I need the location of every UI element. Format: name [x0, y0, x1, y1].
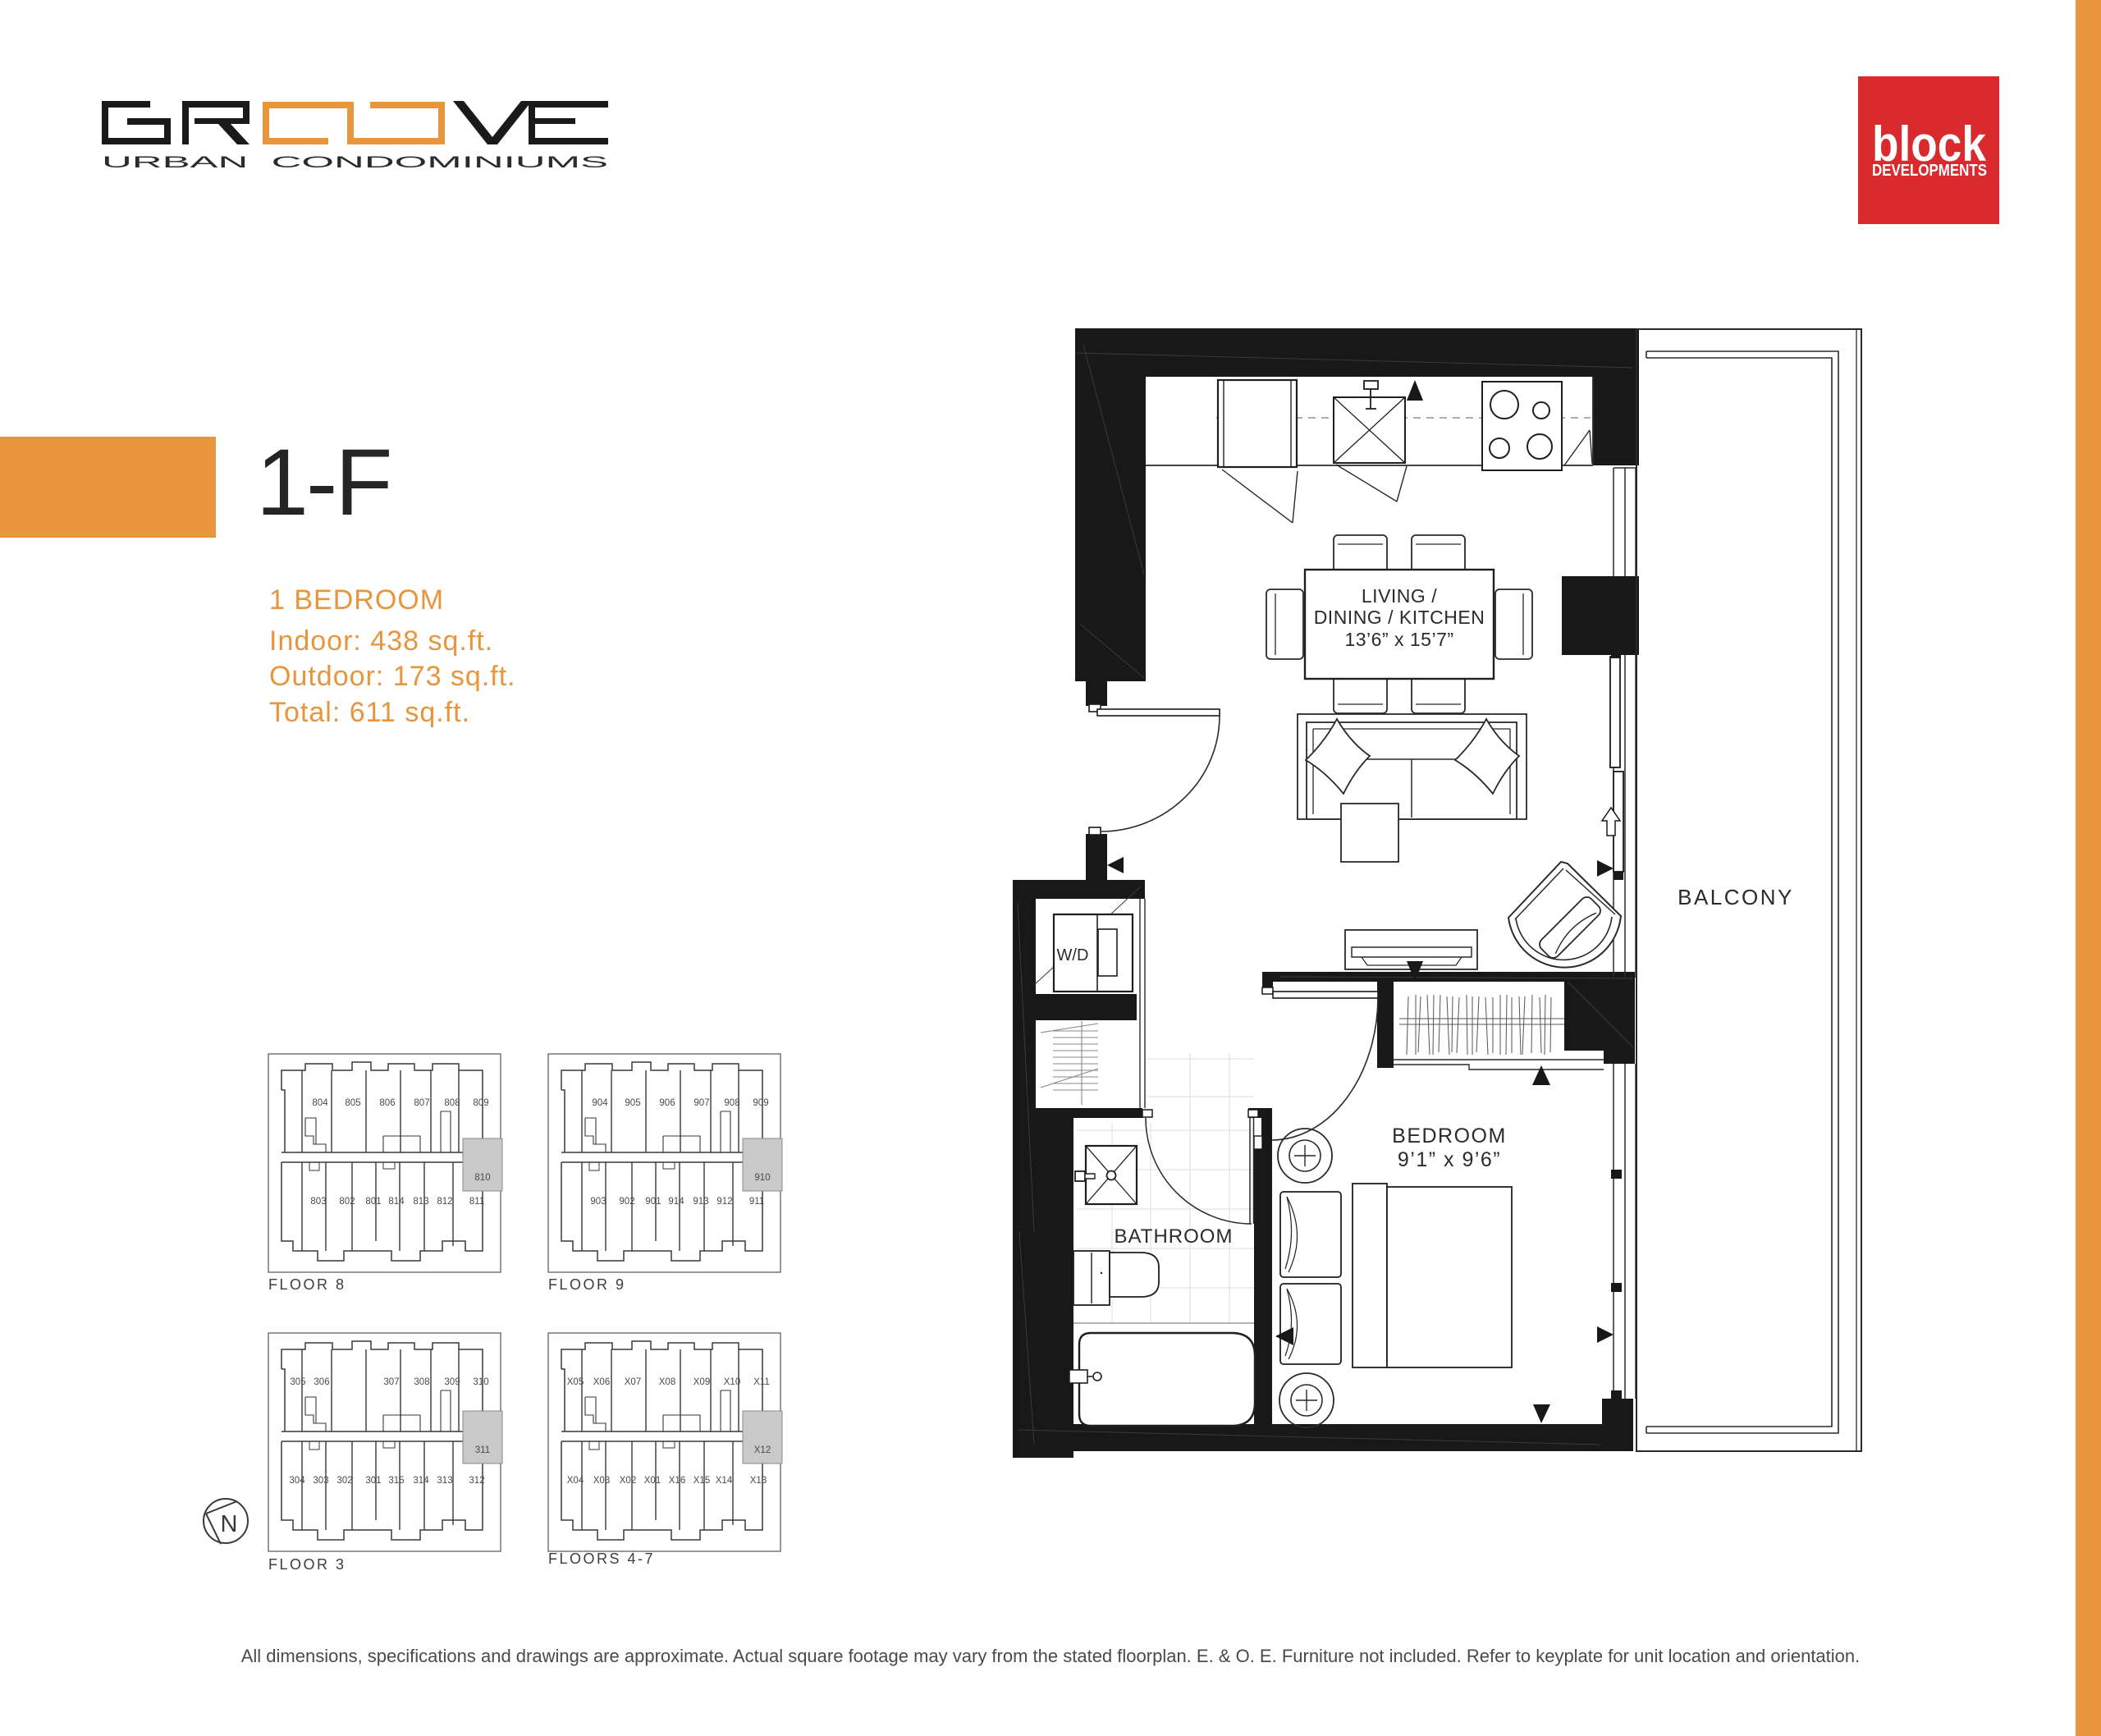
svg-text:DINING / KITCHEN: DINING / KITCHEN [1314, 607, 1485, 628]
svg-text:306: 306 [314, 1377, 329, 1387]
svg-text:910: 910 [754, 1173, 770, 1183]
svg-text:X11: X11 [753, 1377, 770, 1387]
svg-text:906: 906 [659, 1098, 675, 1108]
svg-text:913: 913 [693, 1197, 708, 1207]
svg-text:810: 810 [474, 1173, 490, 1183]
svg-text:309: 309 [444, 1377, 460, 1387]
svg-text:301: 301 [365, 1476, 381, 1486]
svg-text:808: 808 [444, 1098, 460, 1108]
svg-text:X14: X14 [716, 1476, 733, 1486]
svg-text:905: 905 [625, 1098, 640, 1108]
svg-text:814: 814 [388, 1197, 405, 1207]
svg-text:312: 312 [469, 1476, 484, 1486]
svg-text:304: 304 [289, 1476, 305, 1486]
svg-text:303: 303 [313, 1476, 328, 1486]
svg-text:X07: X07 [625, 1377, 641, 1387]
svg-text:FLOOR 3: FLOOR 3 [268, 1556, 346, 1573]
svg-text:812: 812 [437, 1197, 452, 1207]
svg-text:N: N [221, 1511, 238, 1537]
svg-text:X04: X04 [567, 1476, 584, 1486]
svg-text:X06: X06 [593, 1377, 610, 1387]
svg-text:314: 314 [413, 1476, 429, 1486]
svg-text:903: 903 [590, 1197, 606, 1207]
svg-text:X15: X15 [693, 1476, 710, 1486]
svg-text:909: 909 [753, 1098, 768, 1108]
svg-text:FLOOR 9: FLOOR 9 [548, 1276, 626, 1293]
svg-text:BATHROOM: BATHROOM [1115, 1225, 1234, 1248]
svg-text:X16: X16 [669, 1476, 685, 1486]
svg-text:308: 308 [414, 1377, 429, 1387]
svg-text:URBAN CONDOMINIUMS: URBAN CONDOMINIUMS [102, 153, 608, 172]
svg-text:907: 907 [693, 1098, 709, 1108]
svg-text:BEDROOM: BEDROOM [1392, 1125, 1507, 1147]
svg-text:801: 801 [365, 1197, 381, 1207]
svg-text:FLOOR 8: FLOOR 8 [268, 1276, 346, 1293]
svg-text:313: 313 [437, 1476, 452, 1486]
svg-text:902: 902 [619, 1197, 634, 1207]
svg-text:804: 804 [312, 1098, 328, 1108]
svg-text:912: 912 [716, 1197, 732, 1207]
svg-text:911: 911 [749, 1197, 764, 1207]
svg-text:W/D: W/D [1057, 946, 1089, 964]
svg-text:X02: X02 [620, 1476, 636, 1486]
svg-text:901: 901 [645, 1197, 661, 1207]
svg-text:X10: X10 [724, 1377, 740, 1387]
svg-text:305: 305 [290, 1377, 305, 1387]
svg-text:X03: X03 [593, 1476, 610, 1486]
svg-text:802: 802 [339, 1197, 355, 1207]
svg-text:BALCONY: BALCONY [1678, 885, 1794, 909]
svg-text:806: 806 [379, 1098, 395, 1108]
svg-text:DEVELOPMENTS: DEVELOPMENTS [1872, 162, 1987, 180]
svg-text:809: 809 [473, 1098, 488, 1108]
svg-text:813: 813 [413, 1197, 428, 1207]
svg-text:X08: X08 [659, 1377, 675, 1387]
svg-text:307: 307 [383, 1377, 399, 1387]
svg-text:914: 914 [668, 1197, 684, 1207]
svg-text:311: 311 [475, 1445, 490, 1455]
svg-text:805: 805 [345, 1098, 360, 1108]
svg-text:13’6” x 15’7”: 13’6” x 15’7” [1344, 629, 1453, 650]
svg-text:315: 315 [388, 1476, 404, 1486]
svg-text:LIVING /: LIVING / [1362, 585, 1437, 607]
svg-text:FLOORS 4-7: FLOORS 4-7 [548, 1550, 655, 1567]
svg-text:310: 310 [473, 1377, 488, 1387]
svg-text:X09: X09 [693, 1377, 710, 1387]
svg-text:X13: X13 [750, 1476, 767, 1486]
svg-text:811: 811 [469, 1197, 484, 1207]
svg-text:302: 302 [336, 1476, 352, 1486]
svg-text:904: 904 [592, 1098, 608, 1108]
svg-text:X05: X05 [567, 1377, 584, 1387]
svg-text:803: 803 [310, 1197, 326, 1207]
svg-text:9’1” x 9’6”: 9’1” x 9’6” [1398, 1148, 1501, 1171]
svg-text:X01: X01 [644, 1476, 661, 1486]
svg-text:X12: X12 [754, 1445, 771, 1455]
svg-text:807: 807 [414, 1098, 429, 1108]
svg-text:908: 908 [724, 1098, 739, 1108]
